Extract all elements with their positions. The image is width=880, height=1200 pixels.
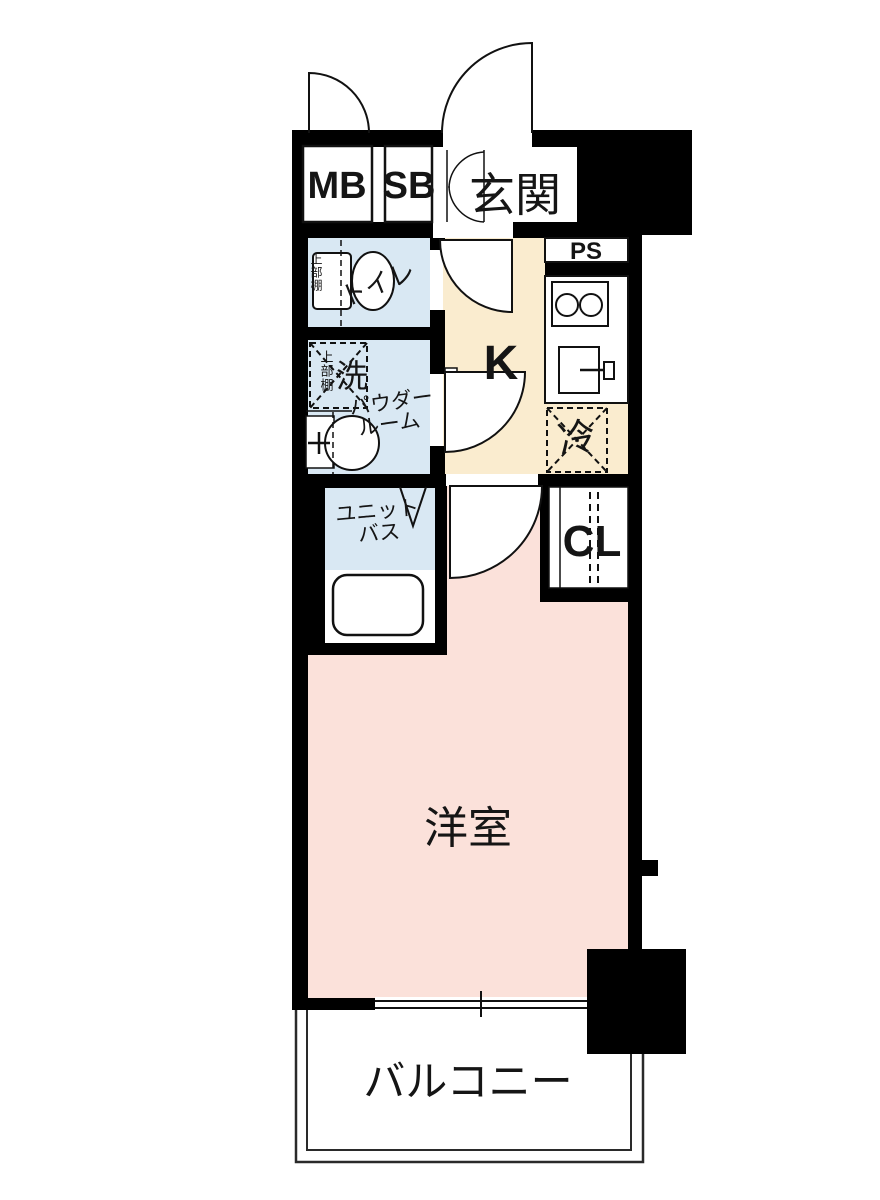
refrigerator-label: 冷 (555, 415, 600, 463)
floor-plan: MB SB 玄関 PS トイレ 上部棚 上部棚 洗 パウダー ルーム ユニット … (0, 0, 880, 1200)
pillar-bottom-right (587, 949, 686, 1054)
entrance-label: 玄関 (469, 169, 561, 221)
stove-burner-right (580, 294, 602, 316)
wall-bath-bottom (292, 643, 447, 655)
wall-kitchen-bottom (538, 474, 628, 488)
western-room-label: 洋室 (424, 804, 512, 853)
washer-label: 洗 (336, 358, 368, 394)
wall-right-nub (642, 860, 658, 876)
wall-top-left (292, 130, 443, 147)
meter-box-label: MB (307, 165, 366, 207)
balcony-label: バルコニー (363, 1058, 572, 1105)
toilet-shelf-label: 上部棚 (309, 253, 323, 292)
powder-shelf-label: 上部棚 (319, 350, 334, 392)
kitchen-label: K (484, 337, 519, 390)
wall-right (628, 235, 642, 949)
wall-room-bottom-stub (292, 998, 375, 1010)
meter-box-door-arc (309, 73, 369, 133)
pipe-space-label: PS (570, 238, 602, 265)
wall-powder-bath (292, 474, 446, 488)
wall-closet-left (540, 487, 549, 600)
shoe-box-label: SB (383, 165, 436, 207)
wall-hall-b (513, 222, 628, 238)
wall-bath-right (435, 486, 447, 654)
stove-burner-left (556, 294, 578, 316)
floor-plan-canvas: MB SB 玄関 PS トイレ 上部棚 上部棚 洗 パウダー ルーム ユニット … (0, 0, 880, 1200)
wall-closet-bottom (540, 588, 628, 602)
wall-powder-right-a (430, 340, 445, 374)
wall-toilet-powder (292, 327, 445, 340)
kitchen-faucet-handle (604, 362, 614, 379)
wall-entry-block (577, 130, 692, 235)
bathtub (333, 575, 423, 635)
unit-bath-label-2: バス (357, 520, 401, 547)
closet-label: CL (563, 517, 622, 566)
wall-hall-a (292, 222, 433, 238)
wall-left-bath (292, 478, 325, 654)
entrance-door-arc (442, 43, 532, 133)
